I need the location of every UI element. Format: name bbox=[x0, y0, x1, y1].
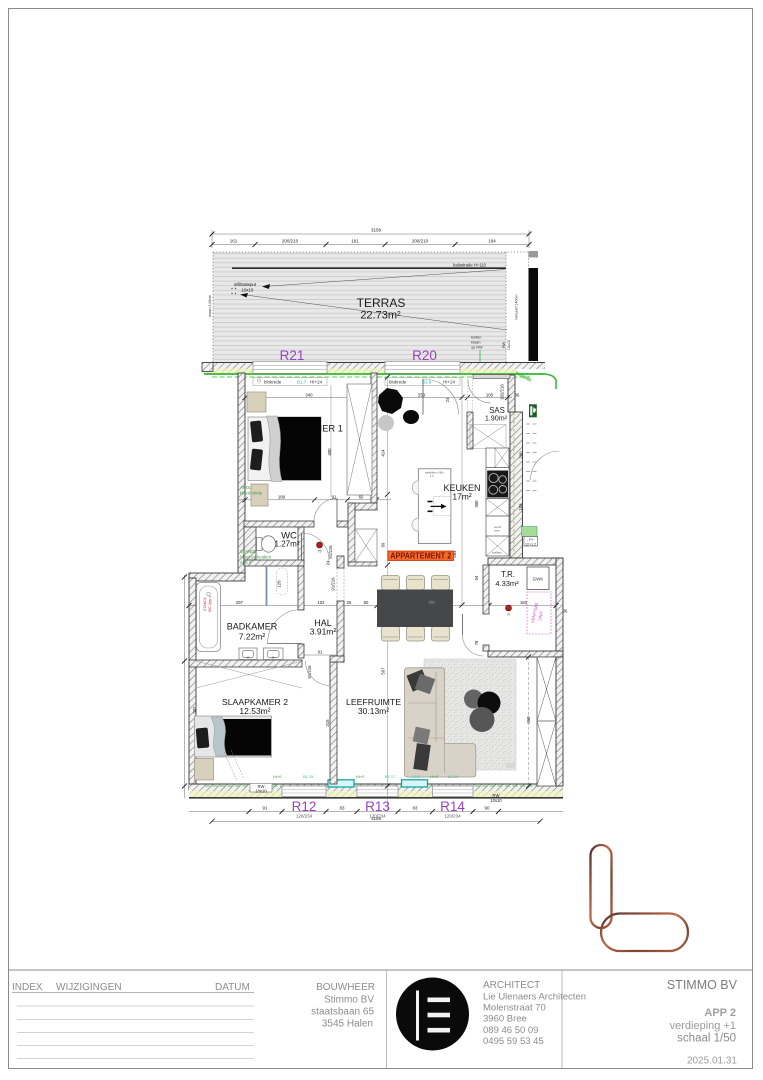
svg-text:Stimmo BV: Stimmo BV bbox=[324, 995, 374, 1006]
svg-text:WIJZIGINGEN: WIJZIGINGEN bbox=[56, 982, 122, 993]
svg-text:36: 36 bbox=[563, 609, 568, 614]
svg-text:Molenstraat 70: Molenstraat 70 bbox=[483, 1003, 546, 1014]
svg-text:120/234: 120/234 bbox=[369, 814, 386, 819]
svg-text:Lie Ulenaers Architecten: Lie Ulenaers Architecten bbox=[483, 992, 586, 1003]
svg-text:HI+24: HI+24 bbox=[310, 380, 323, 385]
svg-text:APPARTEMENT 2: APPARTEMENT 2 bbox=[390, 552, 452, 561]
svg-text:102/216: 102/216 bbox=[500, 384, 505, 400]
svg-text:combi: combi bbox=[494, 525, 501, 529]
svg-text:HI+0: HI+0 bbox=[430, 774, 439, 779]
svg-text:120/234: 120/234 bbox=[296, 814, 313, 819]
svg-text:infiltratieput: infiltratieput bbox=[234, 282, 257, 287]
svg-text:90: 90 bbox=[484, 806, 490, 811]
svg-text:ARCHITECT: ARCHITECT bbox=[483, 980, 540, 991]
svg-text:Vloer en keuken: Vloer en keuken bbox=[240, 555, 272, 560]
svg-text:24: 24 bbox=[445, 397, 450, 402]
svg-text:161: 161 bbox=[351, 239, 359, 244]
svg-text:T.R.: T.R. bbox=[501, 570, 515, 579]
svg-text:X2.2: X2.2 bbox=[412, 774, 420, 779]
svg-text:91: 91 bbox=[318, 650, 323, 655]
svg-text:105: 105 bbox=[486, 392, 494, 397]
svg-text:blokrede: blokrede bbox=[264, 380, 282, 385]
svg-text:200/210: 200/210 bbox=[282, 239, 299, 244]
svg-text:TERRAS: TERRAS bbox=[357, 296, 406, 310]
svg-text:83: 83 bbox=[339, 806, 345, 811]
svg-text:HI+0: HI+0 bbox=[356, 774, 365, 779]
svg-text:APP 2: APP 2 bbox=[704, 1007, 736, 1019]
svg-text:161: 161 bbox=[230, 239, 238, 244]
svg-text:RW: RW bbox=[502, 341, 506, 348]
svg-text:91: 91 bbox=[262, 806, 268, 811]
svg-text:332: 332 bbox=[192, 706, 197, 714]
svg-text:7.22m²: 7.22m² bbox=[239, 632, 266, 642]
svg-text:194: 194 bbox=[488, 239, 496, 244]
svg-text:oven: oven bbox=[494, 530, 500, 533]
svg-text:B1.17: B1.17 bbox=[385, 774, 395, 779]
svg-text:253: 253 bbox=[418, 392, 426, 397]
svg-text:1.0: 1.0 bbox=[430, 474, 434, 478]
svg-text:verdieping +1: verdieping +1 bbox=[670, 1020, 736, 1032]
svg-text:10x10: 10x10 bbox=[490, 798, 502, 803]
svg-text:360: 360 bbox=[526, 716, 531, 724]
svg-text:BOUWHEER: BOUWHEER bbox=[316, 982, 375, 993]
svg-text:200/210: 200/210 bbox=[412, 239, 429, 244]
svg-text:99: 99 bbox=[381, 542, 386, 547]
svg-text:10x10: 10x10 bbox=[255, 788, 267, 793]
svg-text:12.53m²: 12.53m² bbox=[239, 706, 270, 716]
svg-text:BADKAMER: BADKAMER bbox=[227, 622, 278, 632]
svg-text:HI+24: HI+24 bbox=[443, 380, 456, 385]
svg-text:muur=140cm: muur=140cm bbox=[208, 295, 212, 317]
svg-text:106: 106 bbox=[518, 503, 523, 511]
svg-text:. .10x10: . .10x10 bbox=[238, 288, 254, 293]
svg-text:1.27m²: 1.27m² bbox=[275, 540, 300, 549]
svg-text:B1.9: B1.9 bbox=[422, 380, 432, 385]
svg-text:3158: 3158 bbox=[371, 228, 382, 233]
svg-text:79: 79 bbox=[318, 550, 322, 554]
svg-text:3545 Halen: 3545 Halen bbox=[322, 1019, 373, 1030]
svg-text:26: 26 bbox=[347, 600, 352, 605]
svg-text:200: 200 bbox=[519, 451, 524, 459]
svg-text:102: 102 bbox=[317, 600, 325, 605]
svg-text:Hmuur=140cm: Hmuur=140cm bbox=[515, 294, 519, 319]
svg-text:91/216: 91/216 bbox=[331, 577, 336, 591]
svg-text:R13: R13 bbox=[365, 799, 390, 814]
svg-text:- P+: - P+ bbox=[527, 538, 534, 542]
svg-text:R20: R20 bbox=[412, 348, 437, 363]
svg-text:B1.15: B1.15 bbox=[303, 774, 313, 779]
svg-text:STIMMO BV: STIMMO BV bbox=[667, 978, 738, 992]
svg-text:297: 297 bbox=[236, 600, 244, 605]
svg-text:355: 355 bbox=[429, 600, 435, 604]
svg-text:koelkast: koelkast bbox=[492, 551, 502, 555]
svg-text:17m²: 17m² bbox=[452, 492, 472, 502]
svg-text:R21: R21 bbox=[280, 348, 305, 363]
svg-text:1.90m²: 1.90m² bbox=[485, 414, 508, 423]
svg-text:B1.19: B1.19 bbox=[448, 774, 458, 779]
svg-text:blokrede: blokrede bbox=[389, 380, 407, 385]
svg-text:60: 60 bbox=[364, 600, 369, 605]
svg-text:DATUM: DATUM bbox=[215, 982, 250, 993]
svg-text:10x10: 10x10 bbox=[507, 340, 511, 350]
svg-text:120/234: 120/234 bbox=[444, 814, 461, 819]
svg-text:189: 189 bbox=[278, 494, 286, 499]
svg-text:werkblad +/-90h: werkblad +/-90h bbox=[425, 471, 444, 475]
svg-text:INDEX: INDEX bbox=[12, 982, 43, 993]
svg-text:78: 78 bbox=[474, 640, 479, 645]
svg-text:126: 126 bbox=[277, 580, 282, 588]
svg-text:R12: R12 bbox=[292, 799, 317, 814]
svg-text:340: 340 bbox=[305, 392, 313, 397]
svg-text:2025.01.31: 2025.01.31 bbox=[687, 1056, 737, 1067]
svg-text:ANDL: ANDL bbox=[240, 485, 252, 490]
svg-text:597: 597 bbox=[381, 667, 386, 675]
svg-text:36: 36 bbox=[515, 392, 520, 397]
svg-text:R14: R14 bbox=[440, 799, 465, 814]
svg-text:buiten: buiten bbox=[471, 336, 481, 340]
svg-text:315: 315 bbox=[325, 719, 330, 727]
svg-text:30.13m²: 30.13m² bbox=[358, 706, 389, 716]
svg-text:STANDL: STANDL bbox=[203, 597, 207, 611]
svg-text:WC App 4: WC App 4 bbox=[208, 596, 212, 612]
svg-text:83: 83 bbox=[412, 806, 418, 811]
svg-text:App 4: App 4 bbox=[240, 560, 252, 565]
svg-text:94: 94 bbox=[474, 575, 479, 580]
svg-text:4.33m²: 4.33m² bbox=[495, 579, 519, 588]
svg-text:400: 400 bbox=[327, 448, 332, 456]
svg-text:kraan: kraan bbox=[471, 341, 481, 345]
svg-text:12+1.2: 12+1.2 bbox=[525, 543, 536, 547]
svg-text:300: 300 bbox=[474, 500, 479, 508]
svg-text:414: 414 bbox=[381, 449, 386, 457]
svg-text:089 46 50 09: 089 46 50 09 bbox=[483, 1025, 538, 1036]
svg-text:schaal 1/50: schaal 1/50 bbox=[677, 1033, 736, 1045]
svg-text:kleedruimte: kleedruimte bbox=[240, 491, 263, 496]
svg-text:GWK: GWK bbox=[533, 577, 544, 582]
svg-text:op RW: op RW bbox=[471, 346, 483, 350]
svg-text:0495 59 53 45: 0495 59 53 45 bbox=[483, 1036, 544, 1047]
svg-text:m: m bbox=[507, 613, 510, 617]
svg-text:balustrade H=110: balustrade H=110 bbox=[453, 263, 487, 268]
svg-text:STANDL: STANDL bbox=[240, 549, 257, 554]
svg-text:HI+0: HI+0 bbox=[273, 774, 282, 779]
svg-text:3.91m²: 3.91m² bbox=[310, 627, 337, 637]
svg-text:3960 Bree: 3960 Bree bbox=[483, 1014, 527, 1025]
svg-text:183: 183 bbox=[520, 600, 528, 605]
svg-text:B1.7: B1.7 bbox=[297, 380, 307, 385]
svg-text:24: 24 bbox=[326, 560, 331, 565]
svg-text:staatsbaan 65: staatsbaan 65 bbox=[311, 1007, 374, 1018]
